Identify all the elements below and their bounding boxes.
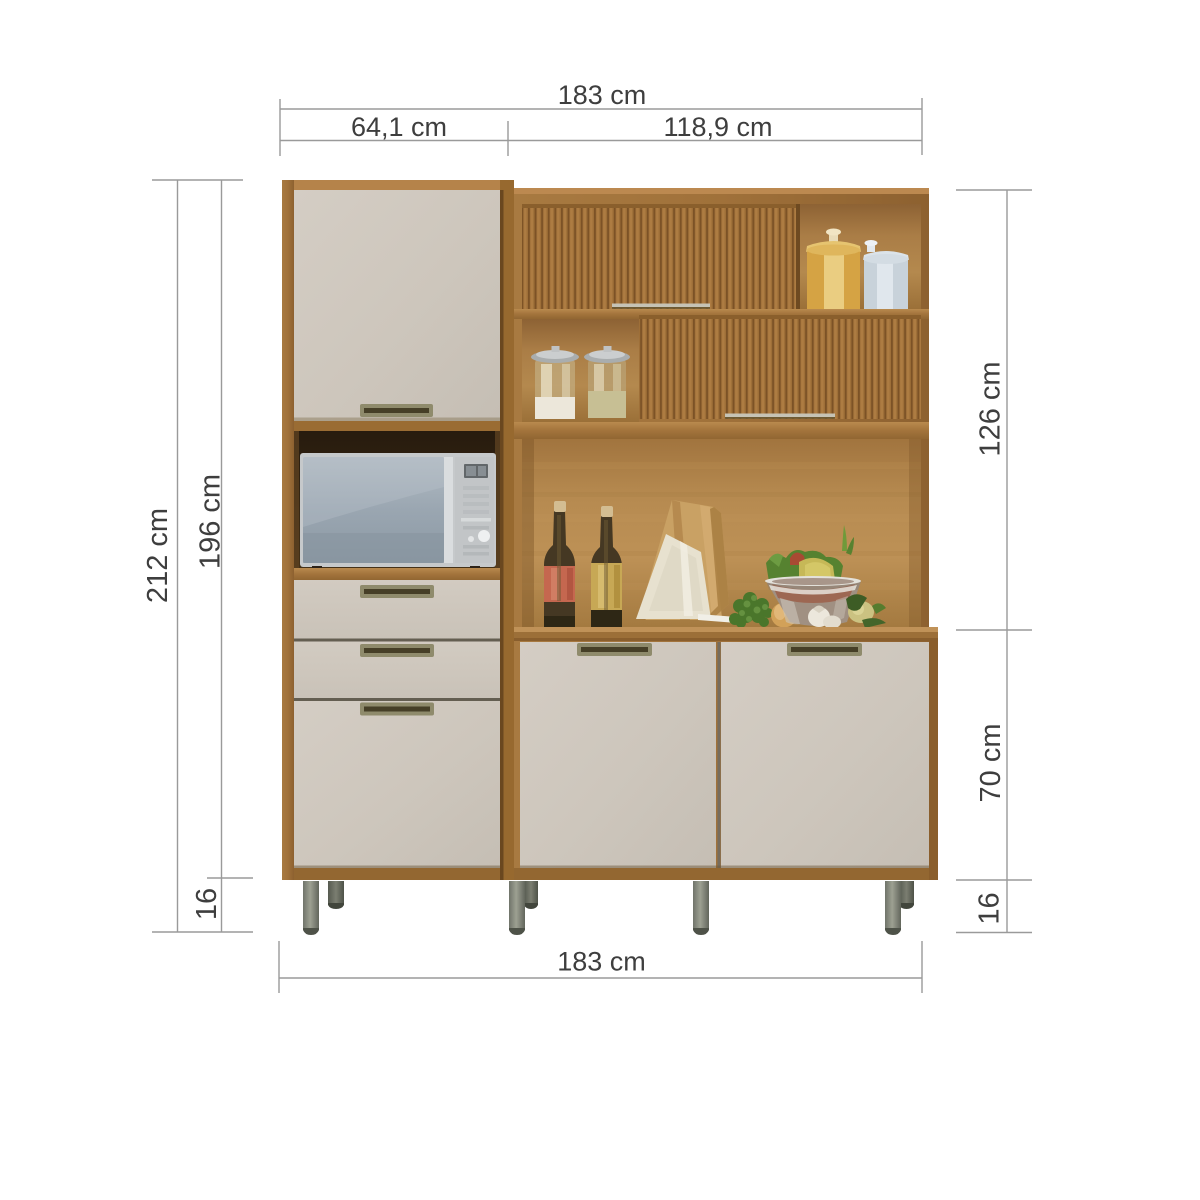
svg-text:70 cm: 70 cm [975, 724, 1007, 803]
svg-text:196 cm: 196 cm [195, 474, 227, 569]
svg-text:16: 16 [191, 888, 223, 920]
svg-text:126 cm: 126 cm [975, 361, 1007, 456]
svg-text:183 cm: 183 cm [557, 947, 646, 977]
svg-text:118,9 cm: 118,9 cm [663, 112, 772, 142]
svg-text:64,1 cm: 64,1 cm [351, 112, 447, 142]
svg-text:212 cm: 212 cm [142, 508, 174, 603]
svg-text:16: 16 [974, 892, 1006, 924]
svg-text:183 cm: 183 cm [558, 80, 647, 110]
